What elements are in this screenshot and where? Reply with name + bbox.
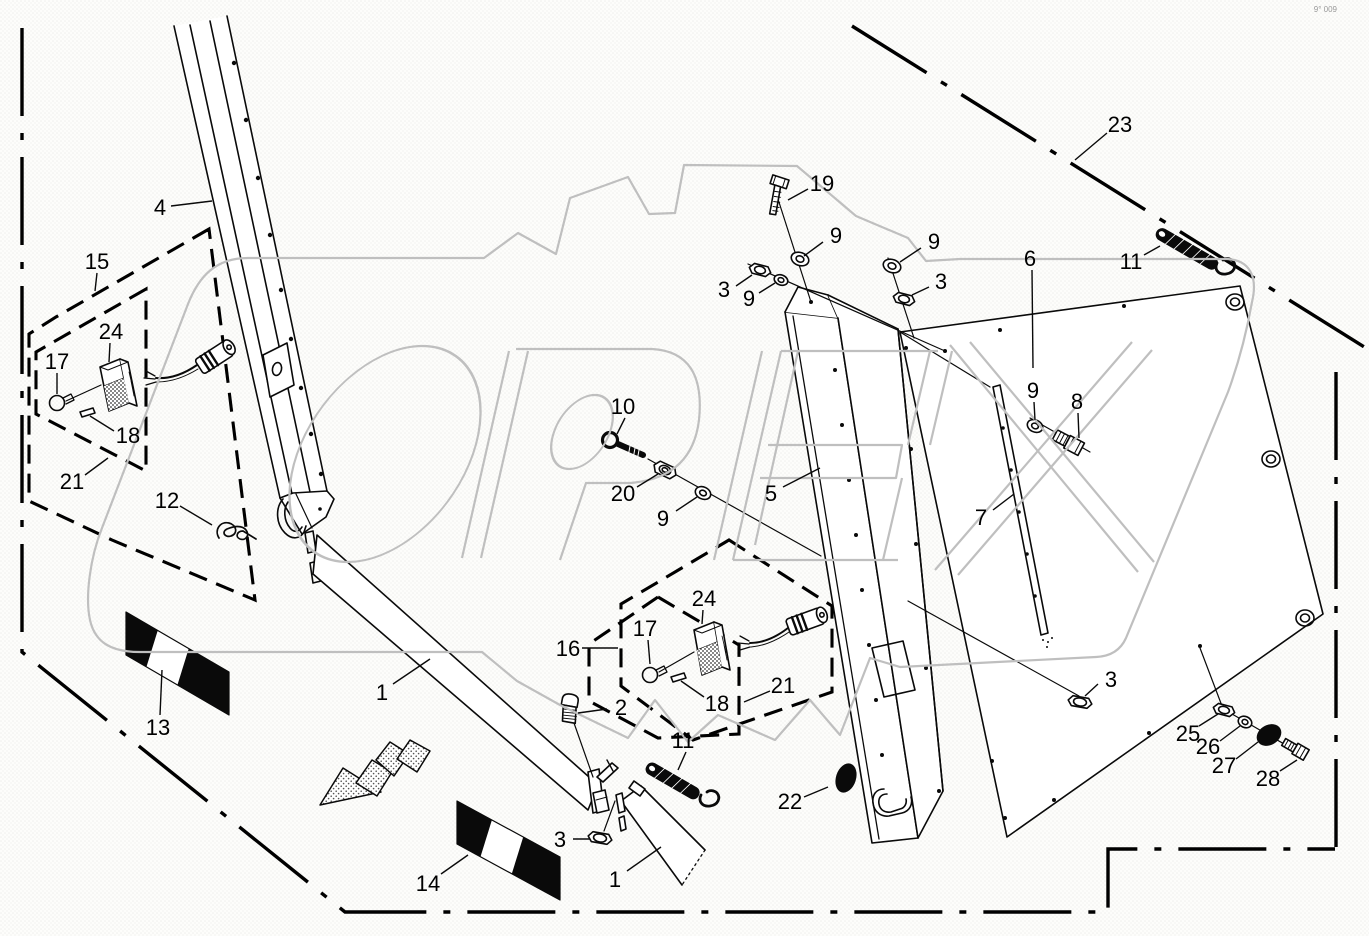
svg-text:1: 1 xyxy=(609,867,621,892)
svg-text:6: 6 xyxy=(1024,246,1036,271)
svg-text:11: 11 xyxy=(1120,249,1143,274)
svg-text:9: 9 xyxy=(928,229,940,254)
svg-text:9: 9 xyxy=(743,286,755,311)
svg-text:20: 20 xyxy=(611,481,635,506)
svg-text:24: 24 xyxy=(99,319,123,344)
svg-text:1: 1 xyxy=(376,680,388,705)
svg-text:12: 12 xyxy=(155,488,179,513)
svg-text:19: 19 xyxy=(810,171,834,196)
svg-text:21: 21 xyxy=(771,673,795,698)
svg-text:3: 3 xyxy=(935,269,947,294)
svg-text:22: 22 xyxy=(778,789,802,814)
svg-text:18: 18 xyxy=(705,691,729,716)
svg-text:3: 3 xyxy=(1105,667,1117,692)
svg-text:28: 28 xyxy=(1256,766,1280,791)
svg-text:9: 9 xyxy=(657,506,669,531)
svg-text:3: 3 xyxy=(718,277,730,302)
svg-text:17: 17 xyxy=(633,616,657,641)
svg-text:27: 27 xyxy=(1212,753,1236,778)
svg-text:5: 5 xyxy=(765,481,777,506)
svg-text:17: 17 xyxy=(45,349,69,374)
svg-text:2: 2 xyxy=(615,695,627,720)
svg-text:8: 8 xyxy=(1071,389,1083,414)
svg-text:4: 4 xyxy=(154,195,166,220)
svg-text:15: 15 xyxy=(85,249,109,274)
svg-text:11: 11 xyxy=(672,728,695,753)
svg-text:14: 14 xyxy=(416,871,440,896)
svg-text:13: 13 xyxy=(146,715,170,740)
svg-text:18: 18 xyxy=(116,423,140,448)
svg-text:24: 24 xyxy=(692,586,716,611)
svg-text:9: 9 xyxy=(830,223,842,248)
svg-text:9° 009: 9° 009 xyxy=(1314,5,1338,14)
svg-text:3: 3 xyxy=(554,827,566,852)
svg-text:21: 21 xyxy=(60,469,84,494)
svg-text:9: 9 xyxy=(1027,378,1039,403)
svg-text:7: 7 xyxy=(975,505,987,530)
svg-text:23: 23 xyxy=(1108,112,1132,137)
svg-text:16: 16 xyxy=(556,636,580,661)
svg-text:10: 10 xyxy=(611,394,635,419)
